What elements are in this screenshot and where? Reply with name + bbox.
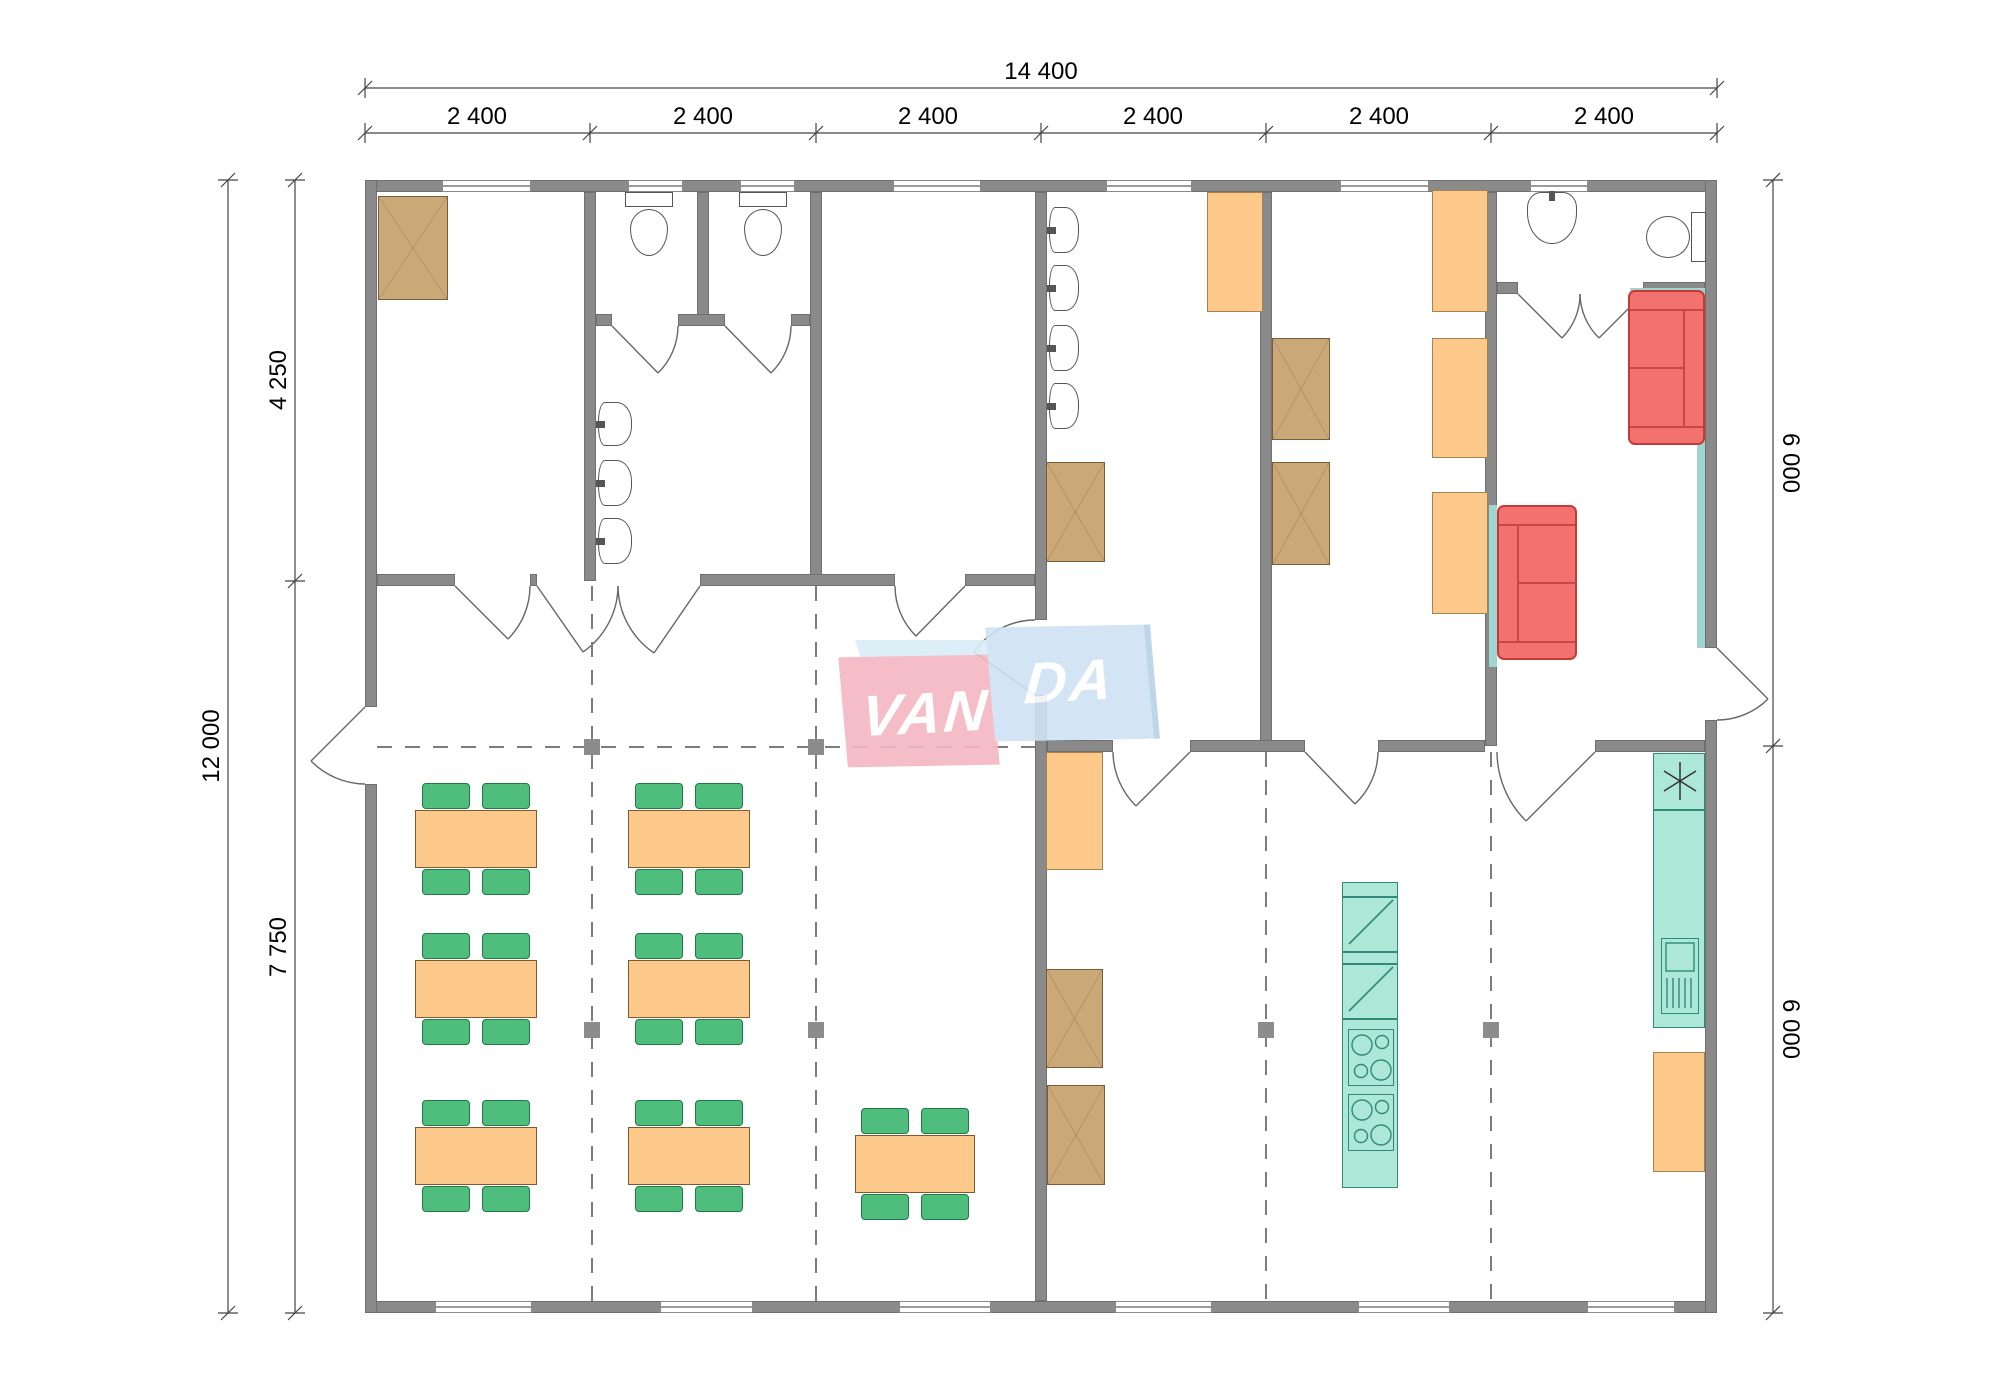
wash-basin — [1049, 265, 1079, 311]
dining-table — [628, 1127, 750, 1185]
bench-cabinet — [1432, 190, 1488, 312]
bench-cabinet — [1432, 338, 1488, 458]
wall-exterior-right-lower — [1705, 720, 1717, 1313]
wash-basin — [1049, 383, 1079, 429]
dim-top-seg-6: 2 400 — [1574, 103, 1634, 131]
dim-top-seg-2: 2 400 — [673, 103, 733, 131]
sofa-back-line — [1683, 309, 1685, 428]
fridge-icon — [1343, 896, 1399, 951]
floor-plan-canvas: 14 400 2 400 2 400 2 400 2 400 2 400 2 4… — [0, 0, 2000, 1380]
wall-bathroom — [1497, 282, 1518, 294]
faucet-icon — [1047, 285, 1056, 292]
window — [1587, 1301, 1675, 1313]
window — [442, 180, 531, 192]
chair — [482, 783, 530, 809]
bench-cabinet — [1207, 192, 1263, 312]
dining-table — [415, 810, 537, 868]
toilet — [625, 192, 673, 258]
dining-table — [415, 1127, 537, 1185]
dim-left-total: 12 000 — [198, 709, 226, 782]
wall-interior — [530, 574, 537, 586]
bench-cabinet — [1432, 492, 1488, 614]
chair — [422, 869, 470, 895]
dim-right-lower: 6 000 — [1776, 999, 1804, 1059]
sofa-armrest-line — [1630, 426, 1703, 428]
dim-top-seg-3: 2 400 — [898, 103, 958, 131]
window — [893, 180, 981, 192]
chair — [695, 1100, 743, 1126]
chair — [695, 869, 743, 895]
grid-marker-icon — [808, 1022, 824, 1038]
chair — [635, 1019, 683, 1045]
grid-marker-icon — [1483, 1022, 1499, 1038]
dim-top-seg-1: 2 400 — [447, 103, 507, 131]
chair — [635, 783, 683, 809]
window — [628, 180, 683, 192]
window — [435, 1301, 532, 1313]
chair — [422, 933, 470, 959]
dining-table — [855, 1135, 975, 1193]
chair — [861, 1194, 909, 1220]
sofa-armrest-line — [1499, 524, 1575, 526]
toilet-bowl — [1646, 216, 1690, 258]
chair — [482, 933, 530, 959]
wall-wc-stall — [596, 314, 612, 326]
faucet-icon — [1047, 403, 1056, 410]
dim-left-lower: 7 750 — [265, 917, 293, 977]
chair — [422, 1100, 470, 1126]
kitchen-island — [1342, 882, 1398, 1188]
dining-table — [628, 810, 750, 868]
cooktop-icon — [1348, 1094, 1394, 1151]
wash-basin — [1049, 207, 1079, 253]
wall-interior — [377, 574, 455, 586]
dim-top-seg-5: 2 400 — [1349, 103, 1409, 131]
wardrobe — [378, 196, 448, 300]
window — [740, 180, 795, 192]
toilet — [1644, 212, 1706, 262]
wall-interior — [1595, 740, 1705, 752]
grid-marker-icon — [584, 1022, 600, 1038]
wall-interior — [700, 574, 895, 586]
wall-interior — [810, 192, 822, 581]
bench-cabinet — [1653, 1052, 1705, 1172]
toilet-bowl — [630, 209, 668, 256]
sofa-armrest-line — [1630, 309, 1703, 311]
faucet-icon — [1047, 345, 1056, 352]
wash-basin — [1049, 325, 1079, 371]
chair — [635, 933, 683, 959]
logo-text-van: VAN — [859, 677, 993, 751]
grid-marker-icon — [808, 739, 824, 755]
chair — [695, 783, 743, 809]
grid-line — [591, 586, 593, 1301]
wall-exterior-left-upper — [365, 180, 377, 707]
chair — [921, 1108, 969, 1134]
dim-right-upper: 6 000 — [1776, 433, 1804, 493]
toilet-tank — [625, 192, 673, 207]
dim-top-seg-4: 2 400 — [1123, 103, 1183, 131]
window — [1340, 180, 1429, 192]
wardrobe — [1272, 338, 1330, 440]
window — [1530, 180, 1588, 192]
counter-star-icon — [1654, 754, 1706, 809]
chair — [695, 933, 743, 959]
sofa-cushion-line — [1630, 367, 1683, 369]
chair — [921, 1194, 969, 1220]
dim-top-total: 14 400 — [1004, 58, 1077, 86]
dim-left-upper: 4 250 — [265, 350, 293, 410]
wall-exterior-bottom — [365, 1301, 1717, 1313]
chair — [635, 869, 683, 895]
wall-lining — [1489, 505, 1497, 667]
wall-interior — [1190, 740, 1305, 752]
wall-interior — [697, 192, 709, 320]
window — [660, 1301, 753, 1313]
faucet-icon — [1047, 227, 1056, 234]
chair — [422, 783, 470, 809]
sofa-cushion-line — [1519, 582, 1577, 584]
wardrobe — [1047, 1085, 1105, 1185]
fridge-icon — [1343, 963, 1399, 1018]
logo-text-da: DA — [1022, 646, 1118, 718]
chair — [695, 1019, 743, 1045]
wardrobe — [1046, 969, 1103, 1068]
chair — [422, 1186, 470, 1212]
kitchen-counter — [1653, 753, 1705, 1028]
chair — [861, 1108, 909, 1134]
chair — [482, 869, 530, 895]
wall-exterior-top — [365, 180, 1717, 192]
grid-marker-icon — [1258, 1022, 1274, 1038]
sofa-armrest-line — [1499, 641, 1575, 643]
toilet — [739, 192, 787, 258]
toilet-tank — [1691, 212, 1706, 262]
toilet-bowl — [744, 209, 782, 256]
kitchen-sink-icon — [1661, 938, 1699, 1014]
sofa — [1628, 290, 1705, 445]
dining-table — [415, 960, 537, 1018]
wardrobe — [1272, 462, 1330, 565]
cooktop-icon — [1348, 1029, 1394, 1086]
window — [899, 1301, 991, 1313]
chair — [635, 1100, 683, 1126]
dining-table — [628, 960, 750, 1018]
toilet-tank — [739, 192, 787, 207]
chair — [695, 1186, 743, 1212]
wall-wc-stall — [678, 314, 725, 326]
grid-marker-icon — [584, 739, 600, 755]
faucet-icon — [1549, 191, 1555, 201]
wall-interior — [965, 574, 1035, 586]
wall-interior — [1378, 740, 1485, 752]
faucet-icon — [596, 538, 605, 545]
wall-exterior-right-upper — [1705, 180, 1717, 648]
chair — [482, 1186, 530, 1212]
chair — [482, 1019, 530, 1045]
wash-basin — [598, 402, 632, 446]
sofa — [1497, 505, 1577, 660]
wall-wc-stall — [791, 314, 810, 326]
bench-cabinet — [1046, 752, 1103, 870]
faucet-icon — [596, 480, 605, 487]
wash-basin — [598, 460, 632, 506]
window — [1115, 1301, 1212, 1313]
window — [1358, 1301, 1450, 1313]
grid-line — [815, 586, 817, 1301]
wardrobe — [1046, 462, 1105, 562]
chair — [482, 1100, 530, 1126]
faucet-icon — [596, 421, 605, 428]
wash-basin — [598, 518, 632, 564]
wash-basin — [1527, 192, 1577, 244]
chair — [422, 1019, 470, 1045]
wall-interior — [584, 192, 596, 581]
vanda-watermark-logo: VAN DA — [840, 618, 1170, 768]
window — [1106, 180, 1192, 192]
wall-exterior-left-lower — [365, 784, 377, 1313]
chair — [635, 1186, 683, 1212]
